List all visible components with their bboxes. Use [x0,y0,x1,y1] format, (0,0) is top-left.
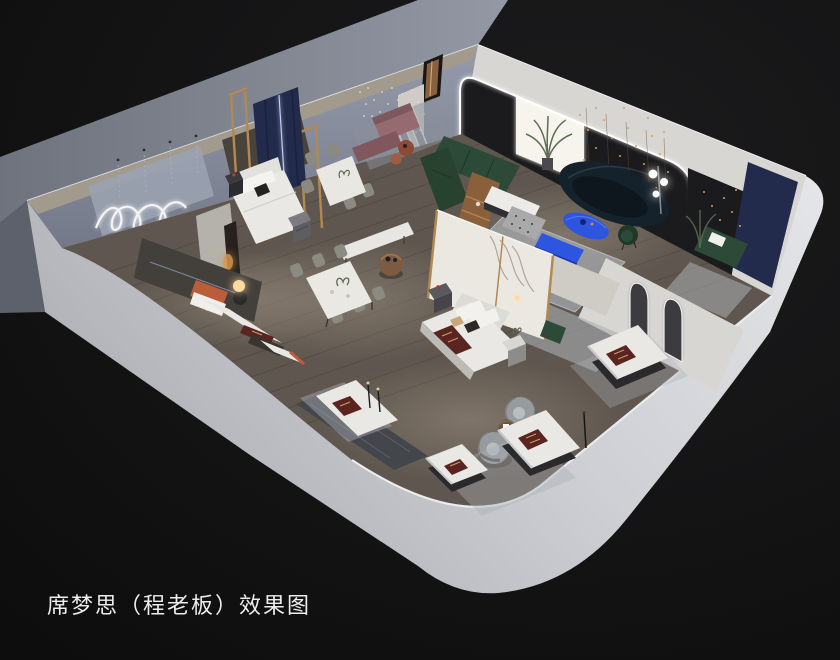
isometric-showroom-render [0,0,840,660]
round-side-table [398,140,414,156]
caption: 席梦思（程老板）效果图 [47,588,311,620]
rendering-canvas: 席梦思（程老板）效果图 [0,0,840,660]
round-side-table [379,252,403,279]
arch-mirror [664,299,682,362]
warm-wall-lamp [223,254,233,270]
round-side-table [391,154,402,165]
pendant-light [515,296,520,301]
